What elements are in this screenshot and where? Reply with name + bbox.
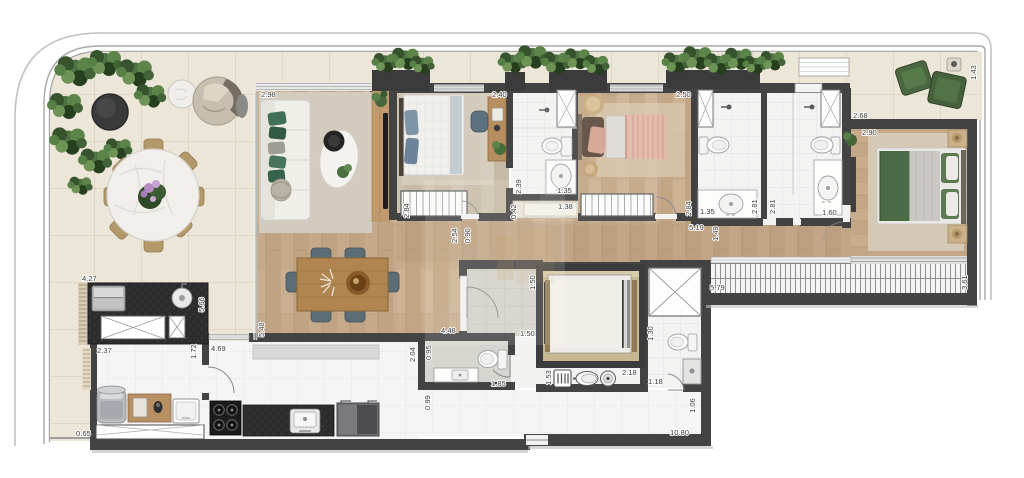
svg-text:2.81: 2.81 (750, 199, 759, 214)
svg-text:5.48: 5.48 (257, 322, 266, 337)
svg-text:4.27: 4.27 (82, 274, 97, 283)
svg-text:5.79: 5.79 (710, 283, 725, 292)
svg-text:1.35: 1.35 (557, 186, 572, 195)
svg-text:2.40: 2.40 (492, 90, 507, 99)
svg-text:2.04: 2.04 (408, 347, 417, 362)
svg-text:5.66: 5.66 (197, 297, 206, 312)
svg-text:2.98: 2.98 (261, 90, 276, 99)
svg-text:4.69: 4.69 (211, 344, 226, 353)
svg-text:2.54: 2.54 (450, 228, 459, 243)
svg-text:1.18: 1.18 (648, 377, 663, 386)
svg-text:2.84: 2.84 (402, 203, 411, 218)
svg-text:1.50: 1.50 (520, 329, 535, 338)
svg-text:2.90: 2.90 (862, 128, 877, 137)
svg-text:0.42: 0.42 (509, 204, 518, 219)
svg-text:4.48: 4.48 (441, 326, 456, 335)
svg-text:1.85: 1.85 (491, 379, 506, 388)
svg-text:0.95: 0.95 (424, 345, 433, 360)
svg-text:0.65: 0.65 (76, 429, 91, 438)
svg-text:1.38: 1.38 (558, 202, 573, 211)
svg-text:1.49: 1.49 (711, 226, 720, 241)
svg-text:1.30: 1.30 (646, 326, 655, 341)
svg-text:1.60: 1.60 (822, 208, 837, 217)
svg-text:1.50: 1.50 (528, 275, 537, 290)
svg-text:2.68: 2.68 (853, 111, 868, 120)
svg-text:2.18: 2.18 (622, 368, 637, 377)
svg-text:2.50: 2.50 (676, 90, 691, 99)
svg-text:1.35: 1.35 (700, 207, 715, 216)
svg-text:2.81: 2.81 (768, 199, 777, 214)
svg-text:2.37: 2.37 (97, 346, 112, 355)
svg-text:0.90: 0.90 (463, 228, 472, 243)
svg-text:2.39: 2.39 (514, 179, 523, 194)
svg-text:3.61: 3.61 (960, 275, 969, 290)
svg-text:1.53: 1.53 (544, 370, 553, 385)
svg-text:5.19: 5.19 (689, 223, 704, 232)
svg-text:10.80: 10.80 (670, 428, 689, 437)
svg-text:0.99: 0.99 (423, 395, 432, 410)
svg-text:2.84: 2.84 (684, 201, 693, 216)
svg-text:1.43: 1.43 (969, 65, 978, 80)
svg-text:1.72: 1.72 (189, 344, 198, 359)
svg-text:1.06: 1.06 (688, 398, 697, 413)
